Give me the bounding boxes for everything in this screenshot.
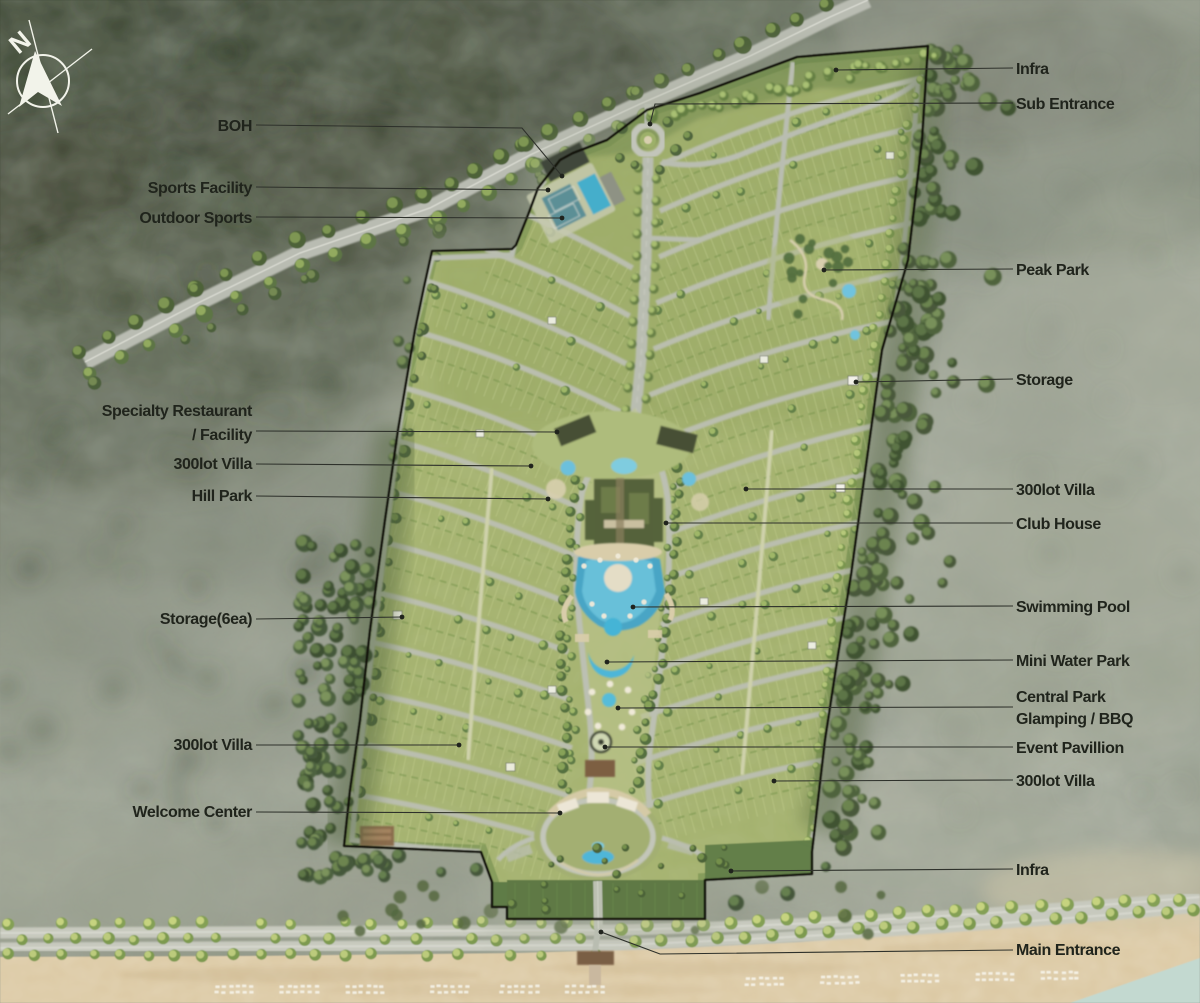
svg-text:Mini Water Park: Mini Water Park <box>1016 653 1130 670</box>
svg-text:BOH: BOH <box>218 118 252 135</box>
svg-text:300lot Villa: 300lot Villa <box>1016 482 1095 499</box>
svg-text:Swimming Pool: Swimming Pool <box>1016 599 1130 616</box>
svg-text:/ Facility: / Facility <box>192 427 253 444</box>
svg-text:Infra: Infra <box>1016 862 1049 879</box>
svg-text:Infra: Infra <box>1016 61 1049 78</box>
svg-text:Storage(6ea): Storage(6ea) <box>160 611 252 628</box>
svg-text:Main Entrance: Main Entrance <box>1016 942 1121 959</box>
svg-text:Specialty Restaurant: Specialty Restaurant <box>102 403 253 420</box>
svg-text:Club House: Club House <box>1016 516 1101 533</box>
svg-text:Sports Facility: Sports Facility <box>148 180 253 197</box>
svg-text:Sub Entrance: Sub Entrance <box>1016 96 1115 113</box>
svg-text:Glamping / BBQ: Glamping / BBQ <box>1016 711 1133 728</box>
svg-text:300lot Villa: 300lot Villa <box>173 456 252 473</box>
svg-text:Welcome Center: Welcome Center <box>133 804 253 821</box>
svg-text:Event Pavillion: Event Pavillion <box>1016 740 1124 757</box>
svg-text:Outdoor Sports: Outdoor Sports <box>139 210 252 227</box>
svg-text:300lot Villa: 300lot Villa <box>173 737 252 754</box>
svg-text:Storage: Storage <box>1016 372 1073 389</box>
svg-text:Hill Park: Hill Park <box>192 488 253 505</box>
svg-text:Central Park: Central Park <box>1016 689 1106 706</box>
svg-text:Peak Park: Peak Park <box>1016 262 1089 279</box>
svg-text:300lot Villa: 300lot Villa <box>1016 773 1095 790</box>
